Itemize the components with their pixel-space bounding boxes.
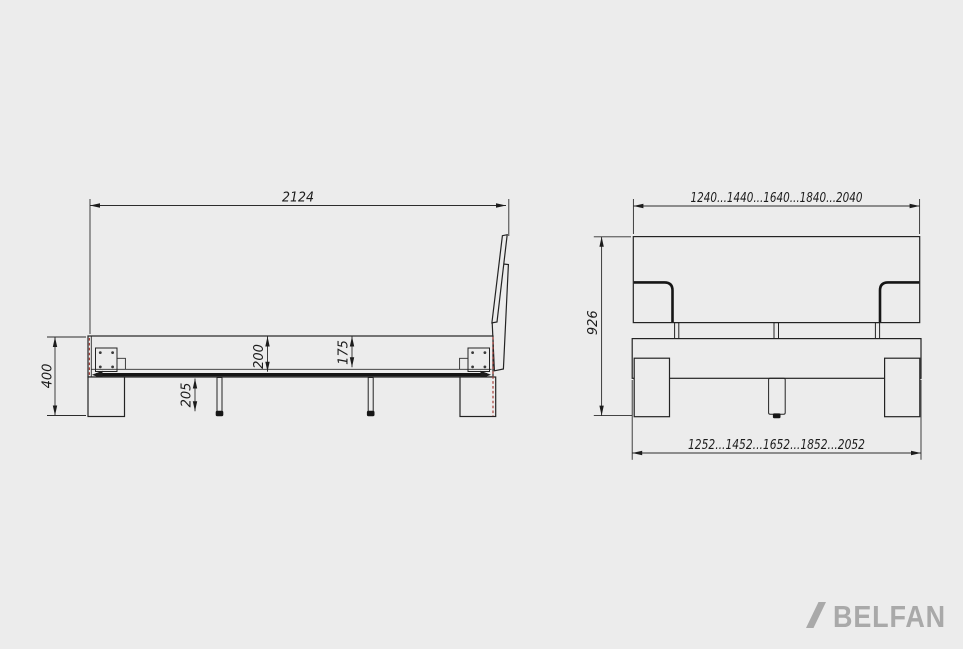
screw-dot [99,351,102,354]
dim-side-length: 2124 [90,191,509,335]
dim-front-top-widths: 1240...1440...1640...1840...2040 [633,191,919,234]
arrowhead-left [90,203,100,207]
left-leg-front [634,358,669,417]
logo-brand-text: BELFAN [833,599,946,634]
dim-side-length-label: 2124 [282,191,314,206]
slat-leg-2-foot [367,411,375,416]
technical-drawing-page: 2124 400 205 200 [0,0,963,649]
dim-side-total-height: 400 [41,337,87,416]
dim-rail-inner-depth-label: 175 [337,340,352,365]
arrowhead-right [911,451,921,455]
slat-leg-1-side [217,378,222,412]
connector-post-left [675,323,679,339]
side-view: 2124 400 205 200 [41,191,509,417]
dim-slat-leg-height: 205 [180,379,198,412]
dim-front-top-widths-label: 1240...1440...1640...1840...2040 [691,191,863,206]
center-leg-foot [773,413,781,418]
brand-logo: BELFAN [806,599,946,634]
logo-slash-icon [806,602,826,628]
arrowhead-down [599,406,603,416]
arrowhead-right [496,203,506,207]
screw-dot [471,366,474,369]
front-view: 1240...1440...1640...1840...2040 926 125… [586,191,921,460]
arrowhead-right [910,204,920,208]
dim-front-total-height-label: 926 [586,310,601,335]
headboard-front [633,237,919,323]
screw-dot [471,351,474,354]
side-rail [88,336,493,377]
right-leg-front [885,358,920,417]
bed-frame-drawing: 2124 400 205 200 [0,0,963,649]
dim-front-bottom-widths-label: 1252...1452...1652...1852...2052 [688,438,865,453]
dim-side-total-height-label: 400 [41,364,56,389]
dim-rail-height-label: 200 [252,344,267,369]
screw-dot [484,351,487,354]
screw-dot [484,366,487,369]
front-rail [632,339,921,379]
arrowhead-left [632,451,642,455]
center-leg-front [769,378,786,414]
screw-dot [99,366,102,369]
slat-leg-1-foot [216,411,224,416]
foot-end-leg-side [88,377,125,417]
screw-dot [111,366,114,369]
dim-front-total-height: 926 [586,237,632,416]
connector-post-right [875,323,879,339]
arrowhead-left [633,204,643,208]
dim-front-bottom-widths: 1252...1452...1652...1852...2052 [632,380,921,460]
slat-leg-2-side [368,378,373,412]
screw-dot [111,351,114,354]
arrowhead-up [599,237,603,247]
dim-slat-leg-height-label: 205 [180,383,195,408]
arrowhead-down [53,406,57,416]
head-end-leg-side [460,377,496,417]
arrowhead-up [53,337,57,347]
connector-post-center [774,323,779,339]
